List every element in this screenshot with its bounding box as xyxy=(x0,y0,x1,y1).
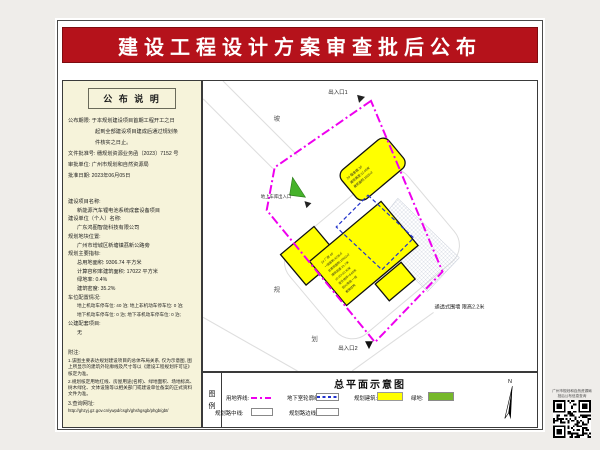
legend-green-swatch xyxy=(428,392,454,401)
publish-period-line3: 件核实之日止。 xyxy=(68,138,196,149)
legend: 总平面示意图 图 例 用地界线: 地下室轮廓线: 规划建筑: 绿地: 规划路中线… xyxy=(202,372,538,428)
builder-label: 建设单位（个人）名称: xyxy=(68,215,196,224)
note-2: 2.规划核定用地红线、房屋用途(名称)、绿地面积、场地标高、树木绿化、文体设施等… xyxy=(68,379,196,398)
legend-title: 总平面示意图 xyxy=(203,376,537,391)
qr-block: 广州市规划和自然资源局 批后公布信息查询 xyxy=(548,389,596,443)
legend-green-label: 绿地: xyxy=(411,394,423,402)
road-char-3: 划 xyxy=(311,334,317,343)
plot-location: 广州市增城区新塘镇荔新公路旁 xyxy=(68,242,196,251)
legend-cell-label: 图 例 xyxy=(203,373,222,427)
site-area: 总用地面积: 9306.74 平方米 xyxy=(68,259,196,268)
publish-period-line1: 公布期限: 于本规划建设项目首期工程开工之日 xyxy=(68,116,196,127)
note-1: 1.该图主要表达规划建设项目的总体布局关系, 仅为示意图, 图上所显示的建筑外轮… xyxy=(68,358,196,377)
legend-building-label: 规划建筑: xyxy=(354,394,377,402)
qr-caption-2: 批后公布信息查询 xyxy=(548,394,596,399)
entrance1-label: 出入口1 xyxy=(328,88,347,96)
legend-road-edge-swatch xyxy=(316,408,339,416)
parking-label: 车位配置情况: xyxy=(68,294,196,303)
floor-area: 计算容积率建筑面积: 17022 平方米 xyxy=(68,268,196,277)
north-label: N xyxy=(508,379,512,385)
building-density: 建筑密度: 35.2% xyxy=(68,285,196,294)
legend-boundary-label: 用地界线: xyxy=(226,394,249,402)
publish-period-line2: 起到全部建设项目建成后通过规划条 xyxy=(68,127,196,138)
panel-header: 公 布 说 明 xyxy=(88,88,176,109)
builder-name: 广东鸿图智能科技有限公司 xyxy=(68,224,196,233)
notes-label: 附注: xyxy=(68,349,196,358)
parking-above: 地上机动车停车位: 40 泊; 地上非机动车停车位: 0 泊; xyxy=(68,302,196,311)
green-ratio: 绿地率: 0.4% xyxy=(68,276,196,285)
project-name: 新能源汽车锂电池系统成套设备项目 xyxy=(68,207,196,216)
public-facility-value: 无 xyxy=(68,329,196,338)
road-char-1: 坡 xyxy=(274,114,281,123)
legend-building-swatch xyxy=(377,392,403,401)
legend-road-center-swatch xyxy=(251,408,273,416)
plot-location-label: 规划地块位置: xyxy=(68,233,196,242)
qr-code xyxy=(553,400,591,438)
title-banner: 建设工程设计方案审查批后公布 xyxy=(62,27,538,63)
wall-note: 通透式围墙 限高2.2米 xyxy=(435,302,485,310)
legend-char-tu: 图 xyxy=(209,389,216,399)
road-char-2: 规 xyxy=(274,285,281,294)
legend-basement-swatch xyxy=(316,393,339,401)
site-plan-map: 2# 宿舍楼 3F 建筑高度:12.45米 建筑面积:1020㎡ 1# 厂房 4… xyxy=(202,80,538,372)
legend-road-center-label: 规划路中线: xyxy=(215,409,243,417)
legend-road-edge-label: 规划路边线: xyxy=(289,409,317,417)
entrance2-icon xyxy=(365,341,373,349)
approval-authority: 审批单位: 广州市规划和自然资源局 xyxy=(68,160,196,171)
entrance2-label: 出入口2 xyxy=(338,344,357,352)
page-title: 建设工程设计方案审查批后公布 xyxy=(118,31,482,60)
legend-boundary-swatch xyxy=(251,397,273,399)
announcement-sheet: 建设工程设计方案审查批后公布 公 布 说 明 公布期限: 于本规划建设项目首期工… xyxy=(55,18,545,432)
query-url: http://ghzyj.gz.gov.cn/ywpd/csgh/ghshgsg… xyxy=(68,408,196,414)
garage-entrance-label: 地上车库出入口 xyxy=(261,193,292,200)
qr-caption-1: 广州市规划和自然资源局 xyxy=(548,389,596,394)
green-space xyxy=(290,177,306,197)
site-plan-svg: 2# 宿舍楼 3F 建筑高度:12.45米 建筑面积:1020㎡ 1# 厂房 4… xyxy=(203,81,537,371)
entrance1-icon xyxy=(357,95,365,103)
announcement-panel: 公 布 说 明 公布期限: 于本规划建设项目首期工程开工之日 起到全部建设项目建… xyxy=(62,80,202,428)
public-facility-label: 公建配套项目: xyxy=(68,320,196,329)
building-top: 2# 宿舍楼 3F 建筑高度:12.45米 建筑面积:1020㎡ xyxy=(337,135,408,203)
parking-below: 地下机动车停车位: 0 泊; 地下非机动车停车位: 0 泊; xyxy=(68,311,196,320)
garage-entrance-icon xyxy=(304,201,311,208)
document-number: 文件批准号: 穗规划资源业务函〔2023〕7152 号 xyxy=(68,149,196,160)
north-arrow: N xyxy=(499,377,521,425)
project-name-label: 建设项目名称: xyxy=(68,198,196,207)
query-url-label: 3.查询网址: xyxy=(68,400,196,409)
indicators-label: 规划主要指标: xyxy=(68,250,196,259)
approval-date: 批准日期: 2023年06月05日 xyxy=(68,171,196,182)
